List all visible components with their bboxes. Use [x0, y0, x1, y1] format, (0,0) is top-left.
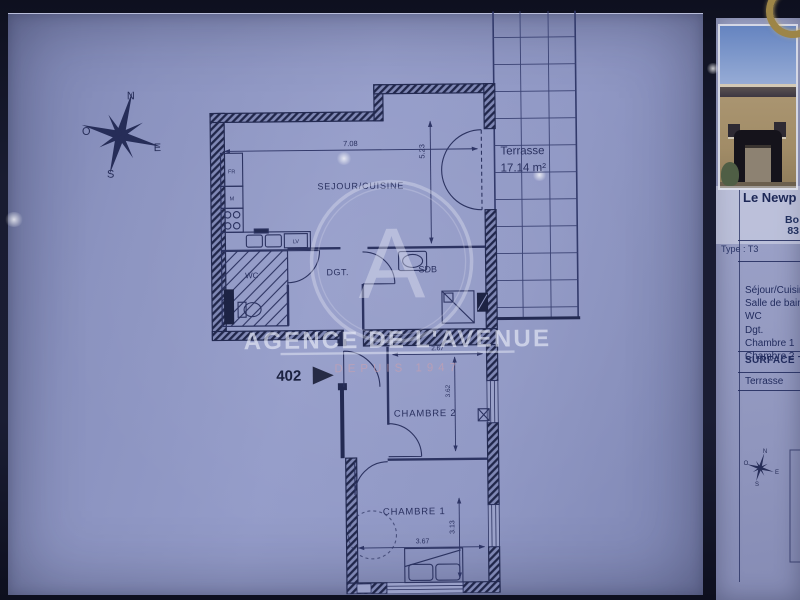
building-photo	[718, 24, 798, 190]
photographed-floor-plan: Le Newp Bo 83 Type : T3 Séjour/Cuisin Sa…	[0, 0, 800, 600]
room-list-item: Chambre 1	[745, 337, 800, 350]
room-list-item: Dgt.	[745, 324, 800, 337]
photo-arch-interior	[745, 145, 771, 182]
divider	[738, 390, 800, 391]
divider	[738, 372, 800, 373]
paper-sheen	[8, 13, 703, 594]
light-reflection	[532, 169, 547, 181]
light-reflection	[336, 152, 352, 165]
light-reflection	[4, 212, 24, 227]
surface-heading: SURFACE T	[745, 355, 800, 366]
light-reflection	[706, 63, 720, 74]
photo-building	[720, 88, 796, 188]
type-row: Type : T3	[721, 244, 758, 254]
photo-archway	[734, 130, 782, 188]
divider	[738, 261, 800, 262]
divider	[738, 240, 800, 241]
terrace-row: Terrasse	[745, 376, 783, 387]
photo-bush	[721, 162, 739, 186]
room-list-item: Séjour/Cuisin	[745, 284, 800, 297]
info-panel: Le Newp Bo 83 Type : T3 Séjour/Cuisin Sa…	[716, 18, 800, 600]
divider	[738, 351, 800, 352]
residence-title: Le Newp	[743, 190, 796, 205]
room-list-item: Salle de bains	[745, 297, 800, 310]
room-list-item: WC	[745, 310, 800, 323]
photo-roof	[720, 87, 796, 97]
address-line-2: 83	[787, 225, 799, 237]
